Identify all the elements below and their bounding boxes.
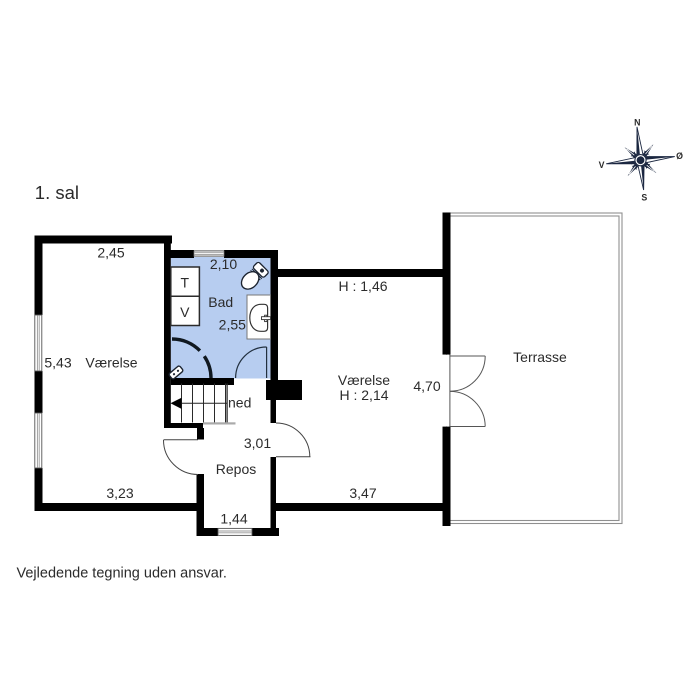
svg-text:Værelse: Værelse bbox=[338, 372, 390, 388]
svg-text:5,43: 5,43 bbox=[44, 355, 71, 371]
svg-text:2,10: 2,10 bbox=[210, 256, 237, 272]
svg-text:Bad: Bad bbox=[208, 294, 233, 310]
svg-text:Terrasse: Terrasse bbox=[513, 349, 567, 365]
svg-text:3,01: 3,01 bbox=[244, 435, 271, 451]
svg-text:V: V bbox=[180, 304, 190, 320]
svg-text:4,70: 4,70 bbox=[413, 378, 440, 394]
svg-text:2,55: 2,55 bbox=[219, 317, 246, 333]
svg-text:ned: ned bbox=[228, 395, 251, 411]
svg-text:Repos: Repos bbox=[216, 461, 256, 477]
svg-text:Vejledende tegning uden ansvar: Vejledende tegning uden ansvar. bbox=[17, 566, 227, 582]
svg-text:2,45: 2,45 bbox=[97, 245, 124, 261]
svg-text:Ø: Ø bbox=[676, 151, 683, 161]
svg-text:3,47: 3,47 bbox=[349, 485, 376, 501]
svg-text:1,44: 1,44 bbox=[220, 511, 247, 527]
svg-text:1. sal: 1. sal bbox=[35, 182, 79, 203]
svg-text:N: N bbox=[634, 118, 640, 128]
svg-text:V: V bbox=[599, 160, 605, 170]
svg-text:H : 2,14: H : 2,14 bbox=[339, 387, 388, 403]
svg-text:3,23: 3,23 bbox=[106, 485, 133, 501]
svg-text:T: T bbox=[181, 275, 190, 291]
svg-text:H : 1,46: H : 1,46 bbox=[338, 278, 387, 294]
svg-text:S: S bbox=[641, 193, 647, 203]
svg-text:Værelse: Værelse bbox=[85, 355, 137, 371]
